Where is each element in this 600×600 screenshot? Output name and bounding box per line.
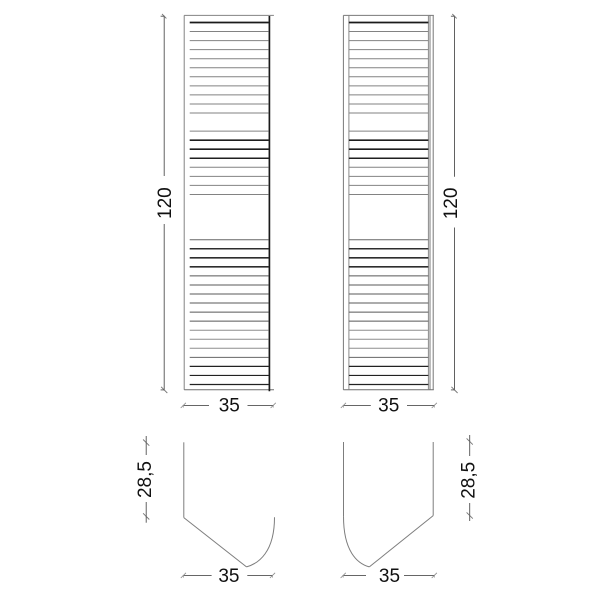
- svg-text:35: 35: [378, 396, 399, 417]
- svg-text:35: 35: [379, 566, 400, 587]
- svg-text:28,5: 28,5: [459, 462, 480, 499]
- svg-text:35: 35: [218, 566, 239, 587]
- svg-text:120: 120: [441, 188, 462, 220]
- svg-text:120: 120: [155, 187, 176, 219]
- svg-text:35: 35: [219, 395, 240, 416]
- svg-text:28,5: 28,5: [135, 461, 156, 498]
